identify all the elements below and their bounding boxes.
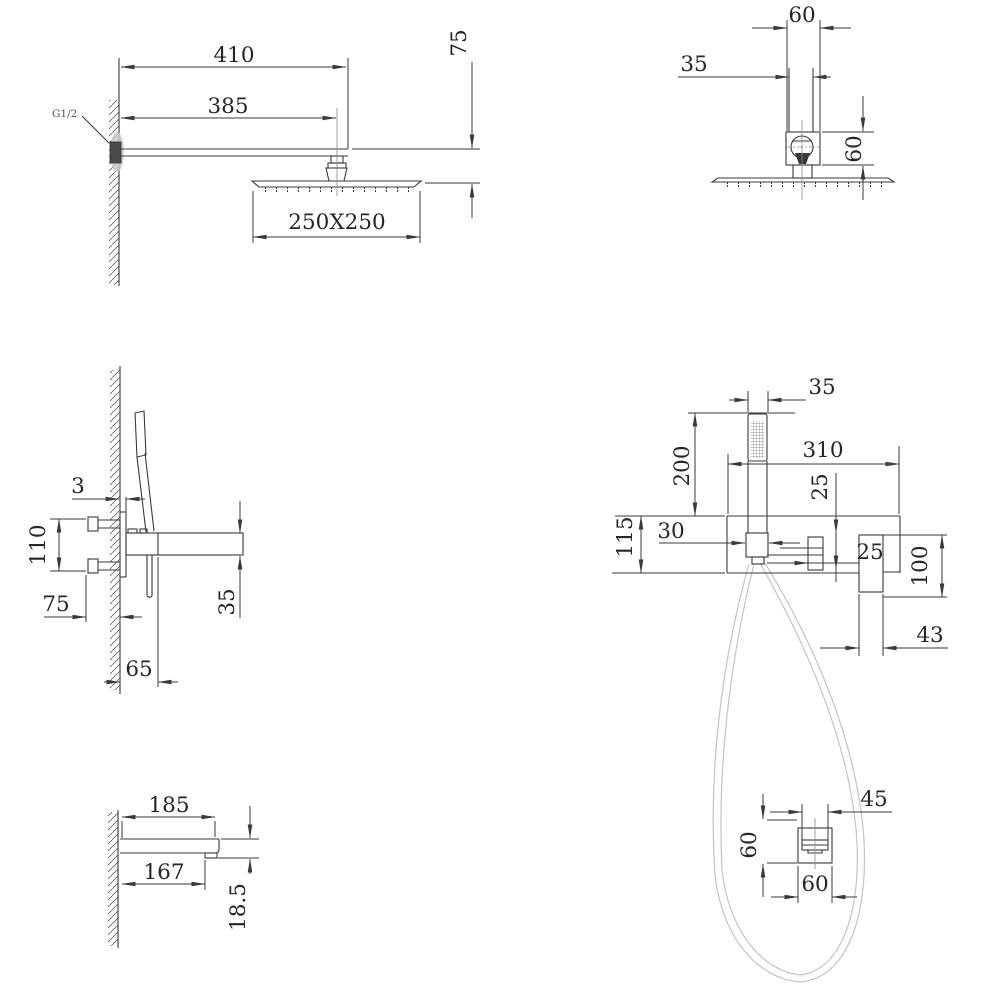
dim-30: 30 (657, 519, 684, 544)
dim-60-outlet-width: 60 (801, 872, 828, 897)
handshower-spray-face (751, 421, 765, 458)
dim-100: 100 (908, 545, 933, 586)
dim-18-5: 18.5 (226, 883, 251, 931)
dim-25-offset: 25 (808, 473, 833, 500)
handshower-holder (746, 533, 768, 557)
view-wall-outlet-front: 45 60 60 (737, 787, 892, 903)
view-mixer-front: 25 35 200 310 25 30 115 (612, 375, 948, 982)
dim-35-handshower: 35 (808, 375, 835, 400)
thread-size-label: G1/2 (52, 108, 77, 120)
wall-hatching (109, 100, 119, 285)
view-shower-head-front: 60 35 60 (678, 3, 894, 200)
wall-thread-connector (110, 142, 121, 163)
wall-hatching (110, 370, 120, 690)
nozzle-ticks (263, 187, 410, 192)
dim-35-spout: 35 (215, 588, 240, 615)
dim-3: 3 (71, 474, 85, 499)
shower-head-plate (252, 181, 421, 187)
bath-spout (120, 839, 219, 853)
dim-75-drop: 75 (447, 29, 472, 56)
shower-hose-outer (713, 563, 864, 982)
dim-75-depth: 75 (42, 592, 69, 617)
dim-410: 410 (213, 43, 254, 68)
view-spout-side: 185 167 18.5 (108, 793, 259, 948)
dim-310: 310 (802, 438, 843, 463)
shower-system-drawing: 410 385 75 G1/2 250X250 60 35 (0, 0, 1000, 988)
supply-inlet-bottom (88, 559, 98, 573)
dim-110: 110 (26, 524, 51, 565)
view-mixer-side: 3 110 75 35 65 (26, 366, 243, 694)
dim-60-outlet-height: 60 (737, 831, 762, 858)
dim-60-width: 60 (788, 3, 815, 28)
mixer-body (126, 533, 243, 555)
dim-25-outlet: 25 (856, 540, 883, 565)
technical-drawing-page: 410 385 75 G1/2 250X250 60 35 (0, 0, 1000, 988)
dim-35-pipe: 35 (680, 52, 707, 77)
spout-aerator (205, 853, 217, 858)
shower-hose-inner (721, 563, 857, 975)
dim-185: 185 (148, 793, 189, 818)
ball-joint (326, 168, 347, 181)
wall-hatching (108, 812, 118, 946)
dim-200: 200 (670, 445, 695, 486)
joint-cone (795, 153, 810, 164)
view-shower-arm-side: 410 385 75 G1/2 250X250 (52, 29, 480, 286)
shower-head-plate-front (712, 178, 894, 182)
dim-385: 385 (207, 94, 248, 119)
dim-60-height: 60 (842, 135, 867, 162)
hose-nipple (752, 557, 764, 564)
dim-250x250: 250X250 (288, 210, 385, 235)
dim-45: 45 (860, 787, 887, 812)
valve-cartridge (808, 537, 823, 570)
dim-167: 167 (143, 860, 184, 885)
handshower-side (135, 411, 146, 457)
supply-inlet-top (88, 517, 98, 531)
lever-handle (147, 596, 152, 597)
dim-115: 115 (613, 516, 638, 557)
nozzle-ticks (722, 182, 884, 187)
dim-65: 65 (125, 657, 152, 682)
dim-43: 43 (916, 623, 943, 648)
